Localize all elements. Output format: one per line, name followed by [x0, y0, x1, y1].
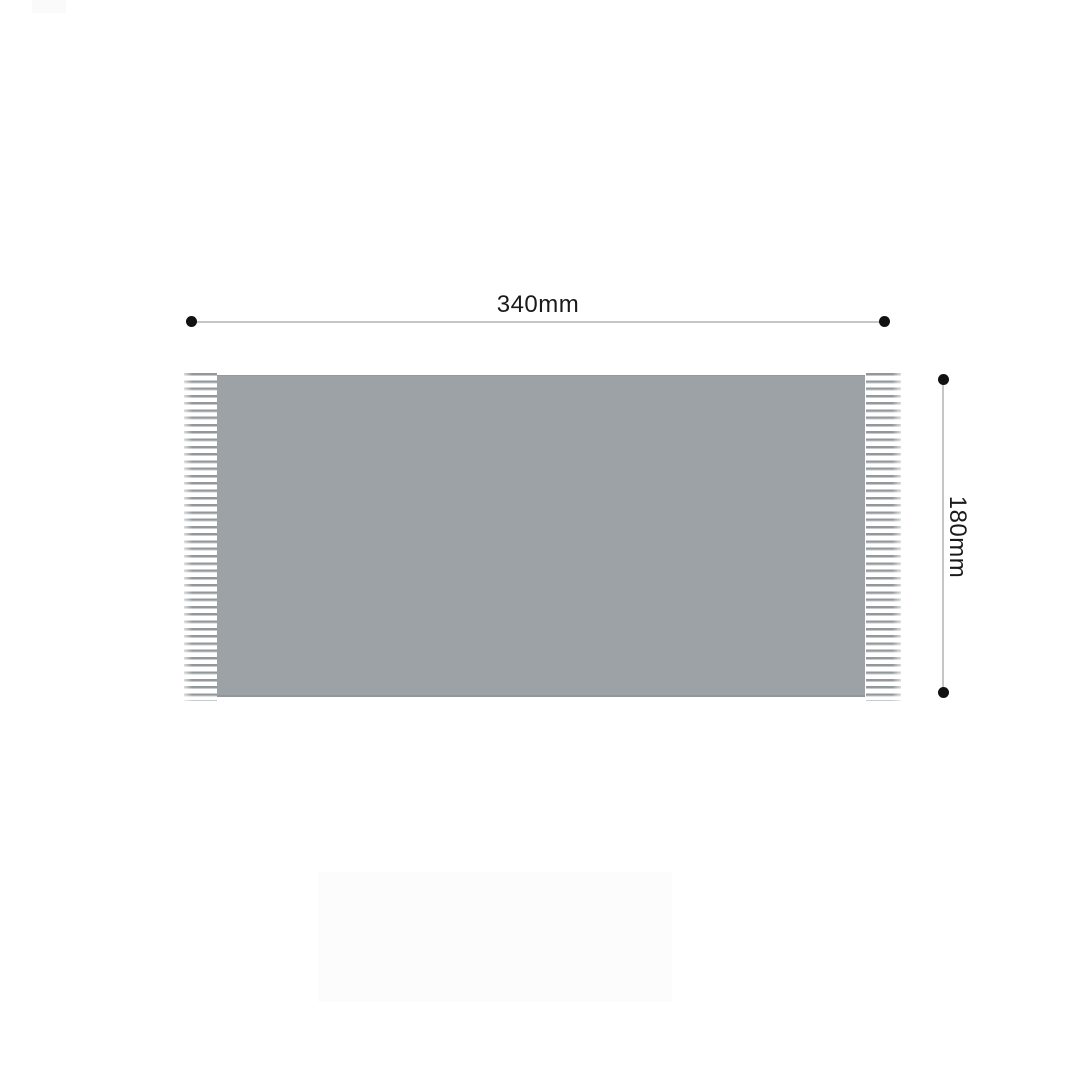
height-dimension-label: 180mm — [943, 496, 971, 579]
fabric-right-fringe — [866, 373, 901, 701]
diagram-canvas: 340mm 180mm — [0, 0, 1080, 1080]
width-dimension-label: 340mm — [192, 291, 884, 318]
height-dimension-bottom-endpoint-dot — [938, 687, 949, 698]
faint-watermark-block — [318, 872, 672, 1002]
width-dimension-left-endpoint-dot — [186, 316, 197, 327]
faint-corner-smudge — [32, 0, 66, 13]
fabric-left-fringe — [184, 373, 217, 701]
width-dimension-line — [193, 321, 884, 323]
fabric-body — [217, 375, 865, 697]
height-dimension-top-endpoint-dot — [938, 374, 949, 385]
width-dimension-right-endpoint-dot — [879, 316, 890, 327]
